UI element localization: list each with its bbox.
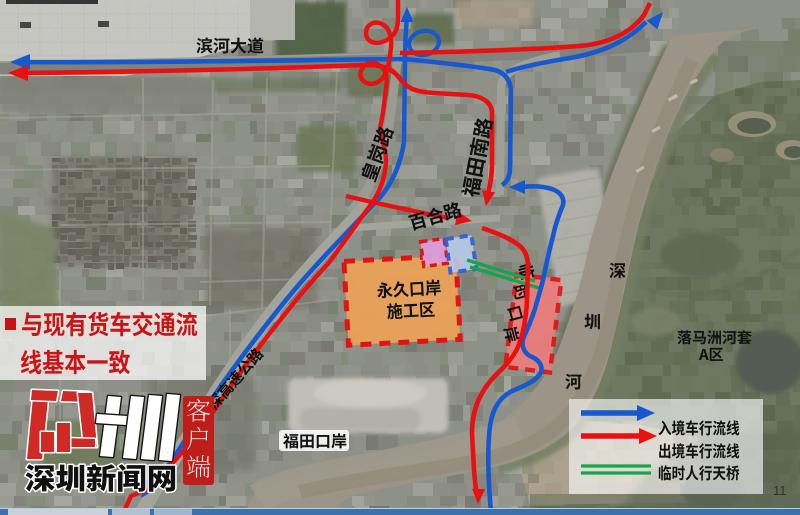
svg-text:11: 11 [773,483,787,498]
